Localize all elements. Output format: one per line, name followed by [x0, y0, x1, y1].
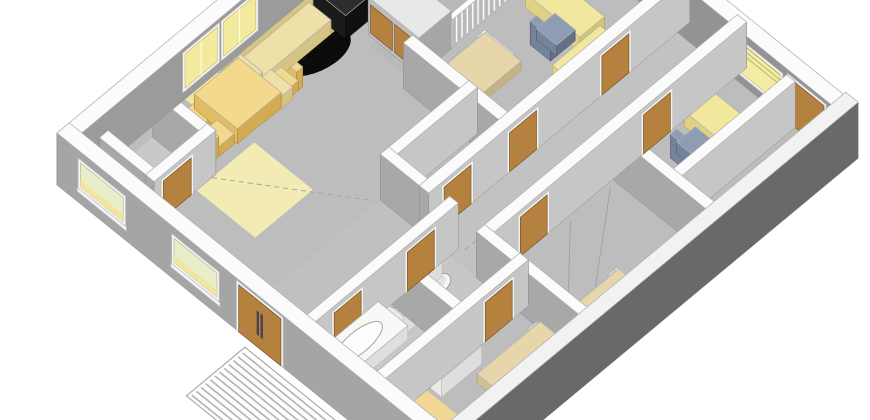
entry-door-glass-slit — [261, 313, 263, 339]
entry-door-glass-slit — [257, 310, 259, 336]
window-mullion — [201, 40, 202, 75]
floorplan-3d-view[interactable] — [0, 0, 870, 420]
window-mullion — [239, 8, 240, 43]
floorplan-stage — [0, 0, 870, 420]
